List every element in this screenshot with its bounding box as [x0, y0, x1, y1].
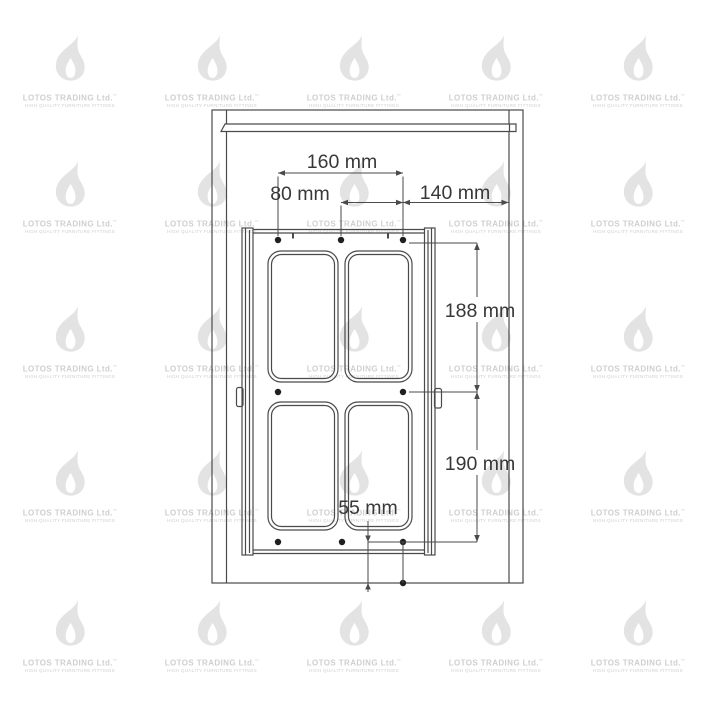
drill-holes	[275, 237, 406, 586]
dimension-190mm-label: 190 mm	[445, 453, 515, 475]
basket-top-right	[345, 251, 412, 382]
mounting-rail	[221, 124, 516, 132]
dimension-190mm: 190 mm	[368, 392, 515, 542]
dimension-80mm: 80 mm	[270, 183, 403, 236]
dimension-188mm-label: 188 mm	[445, 300, 515, 322]
technical-drawing: 160 mm 80 mm 140 mm 188 mm	[0, 0, 703, 703]
basket-bottom-left	[268, 402, 338, 530]
dimension-140mm: 140 mm	[403, 182, 509, 205]
dimension-55mm: 55 mm	[338, 497, 403, 592]
drawing-canvas: LOTOS TRADING Ltd.™HIGH QUALITY FURNITUR…	[0, 0, 703, 703]
dimension-140mm-label: 140 mm	[420, 182, 490, 204]
dimension-55mm-label: 55 mm	[338, 497, 398, 519]
basket-top-left	[268, 251, 338, 382]
dimension-160mm-label: 160 mm	[307, 151, 377, 173]
dimension-80mm-label: 80 mm	[270, 183, 330, 205]
